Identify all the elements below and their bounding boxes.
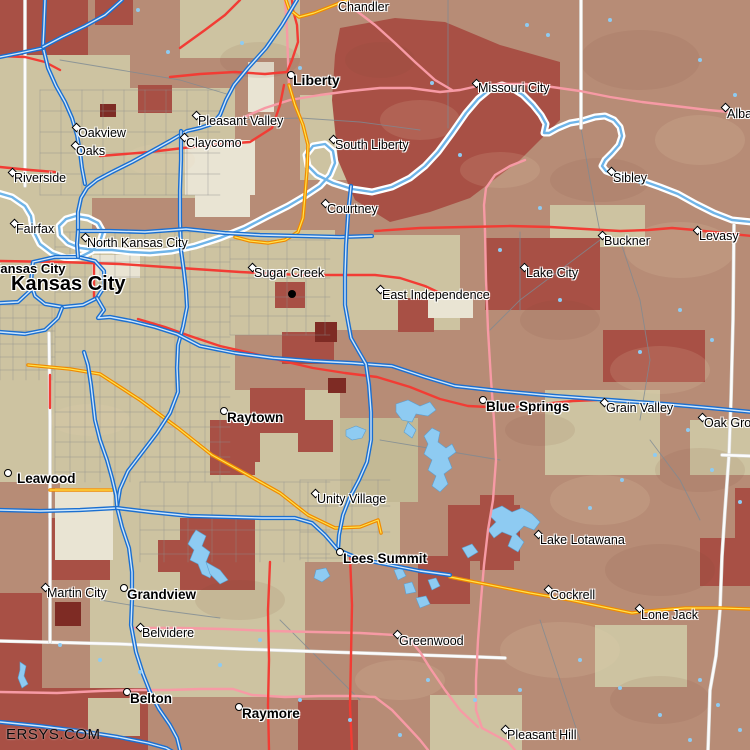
city-label: Martin City [47, 587, 107, 600]
city-label: North Kansas City [87, 237, 188, 250]
city-label: Grain Valley [606, 402, 673, 415]
hillshade [655, 115, 745, 165]
hillshade [500, 622, 620, 678]
pond [546, 33, 550, 37]
watermark: ERSYS.COM [6, 726, 101, 743]
city-label: Grandview [127, 588, 196, 602]
city-label: Pleasant Valley [198, 115, 283, 128]
pond [738, 728, 742, 732]
pond [698, 58, 702, 62]
pond [398, 733, 402, 737]
region-patch [315, 322, 337, 342]
pond [733, 93, 737, 97]
city-label: Cockrell [550, 589, 595, 602]
pond [686, 428, 690, 432]
hillshade [505, 414, 575, 446]
pond [258, 638, 262, 642]
city-label: South Liberty [335, 139, 409, 152]
pond [298, 698, 302, 702]
city-label: Sibley [613, 172, 647, 185]
pond [458, 153, 462, 157]
city-label: Sugar Creek [254, 267, 324, 280]
city-label: Lake Lotawana [540, 534, 625, 547]
map-canvas[interactable] [0, 0, 750, 750]
hillshade [520, 300, 600, 340]
city-label: Pleasant Hill [507, 729, 576, 742]
city-label: Greenwood [399, 635, 464, 648]
pond [138, 670, 142, 674]
pond [716, 703, 720, 707]
hillshade [550, 475, 650, 525]
pond [698, 678, 702, 682]
region-patch [158, 540, 183, 572]
pond [638, 350, 642, 354]
region-patch [55, 602, 81, 626]
city-label: Liberty [293, 73, 340, 87]
city-label: Riverside [14, 172, 66, 185]
pond [525, 23, 529, 27]
city-label: Courtney [327, 203, 378, 216]
hillshade [605, 544, 715, 596]
pond [240, 41, 244, 45]
region-patch [138, 85, 172, 113]
city-label: Lone Jack [641, 609, 698, 622]
city-label: Oak Grove [704, 417, 750, 430]
city-label: Belvidere [142, 627, 194, 640]
pond [430, 81, 434, 85]
pond [538, 206, 542, 210]
region-patch [95, 0, 133, 25]
city-label: Buckner [604, 235, 650, 248]
pond [348, 718, 352, 722]
pond [518, 688, 522, 692]
pond [608, 18, 612, 22]
hillshade [345, 42, 415, 78]
pond [710, 338, 714, 342]
city-marker-circle [4, 469, 12, 477]
pond [688, 738, 692, 742]
city-label: Raymore [242, 707, 300, 721]
pond [578, 658, 582, 662]
city-label: Blue Springs [486, 400, 569, 414]
region-patch [195, 192, 250, 217]
pond [620, 478, 624, 482]
city-label: Fairfax [16, 223, 54, 236]
hillshade [195, 580, 285, 620]
pond [710, 468, 714, 472]
region-patch [55, 488, 113, 560]
pond [658, 713, 662, 717]
pond [298, 66, 302, 70]
pond [473, 698, 477, 702]
city-label: Claycomo [186, 137, 242, 150]
city-label: Albany [727, 108, 750, 121]
hillshade [355, 660, 445, 700]
pond [678, 308, 682, 312]
city-dot-marker [288, 290, 296, 298]
city-label: East Independence [382, 289, 490, 302]
pond [218, 663, 222, 667]
region-patch [328, 378, 346, 393]
city-label: Levasy [699, 230, 739, 243]
pond [426, 678, 430, 682]
pond [738, 500, 742, 504]
city-label: Raytown [227, 411, 283, 425]
city-label: Oaks [76, 145, 105, 158]
white-road [722, 455, 750, 456]
pond [558, 298, 562, 302]
pond [498, 248, 502, 252]
hillshade [580, 30, 700, 90]
city-label: Kansas City [11, 274, 126, 294]
city-label: Lees Summit [343, 552, 427, 566]
pond [136, 8, 140, 12]
city-label: Missouri City [478, 82, 550, 95]
region-patch [298, 420, 333, 452]
pond [653, 453, 657, 457]
city-label: Leawood [17, 472, 76, 486]
city-label: Belton [130, 692, 172, 706]
city-label: Lake City [526, 267, 578, 280]
region-patch [735, 488, 750, 543]
region-patch [100, 104, 116, 117]
hillshade [50, 404, 130, 436]
pond [166, 50, 170, 54]
hillshade [460, 152, 540, 188]
map-viewport[interactable]: ChandlerLibertyMissouri CityAlbanySouth … [0, 0, 750, 750]
city-label: Unity Village [317, 493, 386, 506]
pond [98, 658, 102, 662]
pond [588, 506, 592, 510]
pond [618, 686, 622, 690]
city-label: Chandler [338, 1, 389, 14]
pond [58, 643, 62, 647]
city-label: Oakview [78, 127, 126, 140]
hillshade [610, 346, 710, 394]
